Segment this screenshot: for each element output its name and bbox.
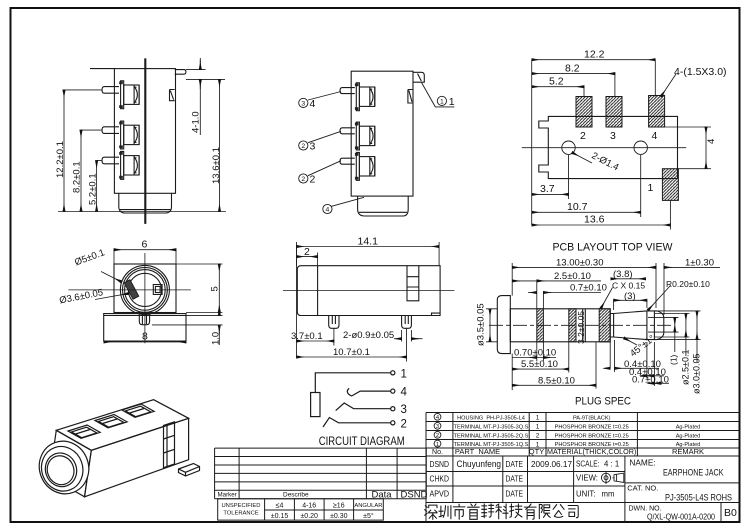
- svg-text:0.7±0.10: 0.7±0.10: [570, 283, 607, 294]
- svg-text:0.7±0.10: 0.7±0.10: [632, 374, 669, 385]
- svg-text:PLUG SPEC: PLUG SPEC: [575, 396, 631, 408]
- svg-text:2: 2: [401, 418, 407, 430]
- svg-text:3: 3: [310, 141, 316, 153]
- svg-text:1: 1: [648, 182, 654, 194]
- svg-text:2: 2: [536, 433, 540, 440]
- svg-text:PHOSPHOR BRONZE t=0.25: PHOSPHOR BRONZE t=0.25: [555, 433, 629, 439]
- svg-text:DATE: DATE: [506, 489, 524, 499]
- svg-text:4-1.0: 4-1.0: [191, 111, 202, 133]
- svg-text:2009.06.17: 2009.06.17: [531, 459, 572, 469]
- svg-text:ø3.0±0.05: ø3.0±0.05: [692, 354, 702, 394]
- svg-text:(3): (3): [624, 291, 636, 302]
- svg-text:PA-9T(BLACK): PA-9T(BLACK): [573, 415, 611, 421]
- svg-text:Ag-Plated: Ag-Plated: [676, 433, 701, 439]
- svg-text:REMARK: REMARK: [672, 447, 704, 456]
- svg-text:DSND: DSND: [430, 459, 450, 469]
- svg-text:DATE: DATE: [506, 459, 524, 469]
- svg-text:13.6: 13.6: [584, 214, 605, 226]
- svg-text:4: 4: [652, 130, 658, 142]
- svg-text:VIEW:: VIEW:: [576, 474, 598, 483]
- svg-text:10.7: 10.7: [567, 201, 588, 213]
- svg-text:CIRCUIT DIAGRAM: CIRCUIT DIAGRAM: [319, 436, 405, 448]
- svg-text:1.0: 1.0: [211, 332, 222, 345]
- svg-text:4-16: 4-16: [302, 503, 316, 510]
- svg-text:2.5±0.10: 2.5±0.10: [554, 271, 591, 282]
- svg-text:UNSPECIFIED: UNSPECIFIED: [222, 503, 261, 509]
- svg-text:3.2±0.05: 3.2±0.05: [576, 311, 586, 344]
- svg-text:HOUSING PH-PJ-3505-L4: HOUSING PH-PJ-3505-L4: [457, 415, 525, 421]
- svg-text:±0.30: ±0.30: [330, 513, 348, 520]
- svg-text:DATE: DATE: [506, 473, 524, 483]
- svg-text:Ag-Plated: Ag-Plated: [676, 424, 701, 430]
- svg-text:12.2±0.1: 12.2±0.1: [55, 141, 66, 178]
- svg-text:1: 1: [536, 424, 540, 431]
- svg-text:CAT. NO.: CAT. NO.: [627, 484, 658, 493]
- svg-text:5.5±0.10: 5.5±0.10: [521, 359, 558, 370]
- svg-text:8.5±0.10: 8.5±0.10: [538, 375, 575, 386]
- svg-text:4: 4: [326, 206, 330, 213]
- svg-text:SCALE:: SCALE:: [576, 459, 600, 468]
- svg-text:QTY: QTY: [529, 447, 544, 456]
- svg-text:Chuyunfeng: Chuyunfeng: [457, 459, 502, 469]
- svg-text:±0.15: ±0.15: [271, 513, 289, 520]
- svg-text:4: 4: [706, 139, 717, 144]
- svg-text:3.7: 3.7: [540, 183, 555, 195]
- svg-text:3: 3: [401, 404, 407, 416]
- svg-text:2: 2: [436, 433, 439, 439]
- svg-text:(3.8): (3.8): [613, 269, 633, 280]
- svg-text:C X 0.15: C X 0.15: [612, 281, 645, 291]
- svg-text:ø2.5±0.1: ø2.5±0.1: [681, 350, 691, 385]
- svg-text:3: 3: [301, 100, 305, 107]
- svg-text:PHOSPHOR BRONZE t=0.25: PHOSPHOR BRONZE t=0.25: [555, 442, 629, 448]
- svg-text:UNIT:: UNIT:: [576, 489, 596, 498]
- svg-text:Describe: Describe: [283, 491, 309, 498]
- svg-text:DSND: DSND: [401, 489, 428, 500]
- svg-text:CHKD: CHKD: [430, 473, 450, 483]
- svg-text:TERMINAL MT-PJ-3505-3Q.S: TERMINAL MT-PJ-3505-3Q.S: [454, 424, 529, 430]
- svg-text:4-(1.5X3.0): 4-(1.5X3.0): [674, 66, 727, 78]
- svg-text:ø3.5±0.05: ø3.5±0.05: [476, 303, 487, 346]
- svg-text:1: 1: [536, 415, 540, 422]
- svg-text:8: 8: [142, 331, 148, 343]
- svg-text:MATERIAL(THICK,COLOR): MATERIAL(THICK,COLOR): [547, 447, 636, 456]
- svg-text:ANGULAR: ANGULAR: [354, 503, 382, 509]
- svg-text:3: 3: [610, 130, 616, 142]
- svg-text:≤4: ≤4: [276, 503, 284, 510]
- svg-text:1: 1: [401, 368, 407, 380]
- svg-text:PJ-3505-L4S ROHS: PJ-3505-L4S ROHS: [665, 493, 732, 504]
- svg-text:4 : 1: 4 : 1: [604, 459, 619, 468]
- svg-text:(1): (1): [669, 354, 679, 365]
- svg-text:TERMINAL MT-PJ-3505-1Q.S: TERMINAL MT-PJ-3505-1Q.S: [454, 442, 529, 448]
- svg-text:≥16: ≥16: [333, 503, 345, 510]
- svg-text:Q/XL-QW-001A-0200: Q/XL-QW-001A-0200: [647, 512, 715, 522]
- svg-text:2: 2: [301, 143, 305, 150]
- svg-text:13.6±0.1: 13.6±0.1: [211, 147, 222, 184]
- svg-text:PHOSPHOR BRONZE t=0.25: PHOSPHOR BRONZE t=0.25: [555, 424, 629, 430]
- svg-text:1: 1: [440, 98, 444, 105]
- svg-text:2: 2: [301, 176, 305, 183]
- svg-text:3.7±0.1: 3.7±0.1: [291, 331, 323, 342]
- svg-text:R0.20±0.10: R0.20±0.10: [666, 279, 710, 289]
- svg-text:12.2: 12.2: [584, 49, 605, 61]
- svg-text:TERMINAL MT-PJ-3505-2Q.S: TERMINAL MT-PJ-3505-2Q.S: [454, 433, 529, 439]
- svg-text:4: 4: [401, 387, 408, 399]
- svg-text:1: 1: [536, 441, 540, 448]
- svg-text:1: 1: [436, 442, 439, 448]
- svg-text:Ag-Plated: Ag-Plated: [676, 442, 701, 448]
- svg-text:13.00±0.30: 13.00±0.30: [556, 257, 603, 268]
- svg-text:TOLERANCE: TOLERANCE: [223, 511, 258, 517]
- svg-text:10.7±0.1: 10.7±0.1: [333, 347, 370, 358]
- svg-text:5: 5: [210, 286, 221, 291]
- svg-text:EARPHONE JACK: EARPHONE JACK: [663, 468, 724, 479]
- svg-text:mm: mm: [602, 489, 615, 498]
- svg-text:8.2: 8.2: [565, 63, 580, 75]
- svg-text:0.70±0.10: 0.70±0.10: [514, 348, 556, 359]
- svg-text:B0: B0: [724, 507, 737, 519]
- svg-text:2: 2: [304, 246, 310, 258]
- svg-text:2: 2: [310, 174, 316, 186]
- svg-text:No.: No.: [432, 449, 443, 456]
- svg-text:2: 2: [580, 130, 586, 142]
- svg-text:±0.20: ±0.20: [300, 513, 318, 520]
- svg-text:8.2±0.1: 8.2±0.1: [72, 161, 83, 193]
- svg-text:2-ø0.9±0.05: 2-ø0.9±0.05: [343, 330, 394, 341]
- svg-text:PCB LAYOUT TOP VIEW: PCB LAYOUT TOP VIEW: [553, 242, 674, 254]
- svg-text:Marker: Marker: [218, 491, 237, 498]
- svg-text:14.1: 14.1: [358, 235, 379, 247]
- svg-text:5.2±0.1: 5.2±0.1: [88, 173, 99, 205]
- svg-text:3: 3: [436, 424, 439, 430]
- svg-text:±5°: ±5°: [363, 512, 374, 520]
- svg-text:PART NAME: PART NAME: [455, 447, 500, 456]
- svg-text:5.2: 5.2: [549, 76, 564, 88]
- svg-text:1: 1: [449, 96, 455, 108]
- svg-text:1±0.30: 1±0.30: [685, 257, 714, 268]
- svg-text:6: 6: [142, 238, 148, 250]
- svg-text:NAME:: NAME:: [629, 458, 655, 468]
- svg-text:APVD: APVD: [430, 489, 450, 499]
